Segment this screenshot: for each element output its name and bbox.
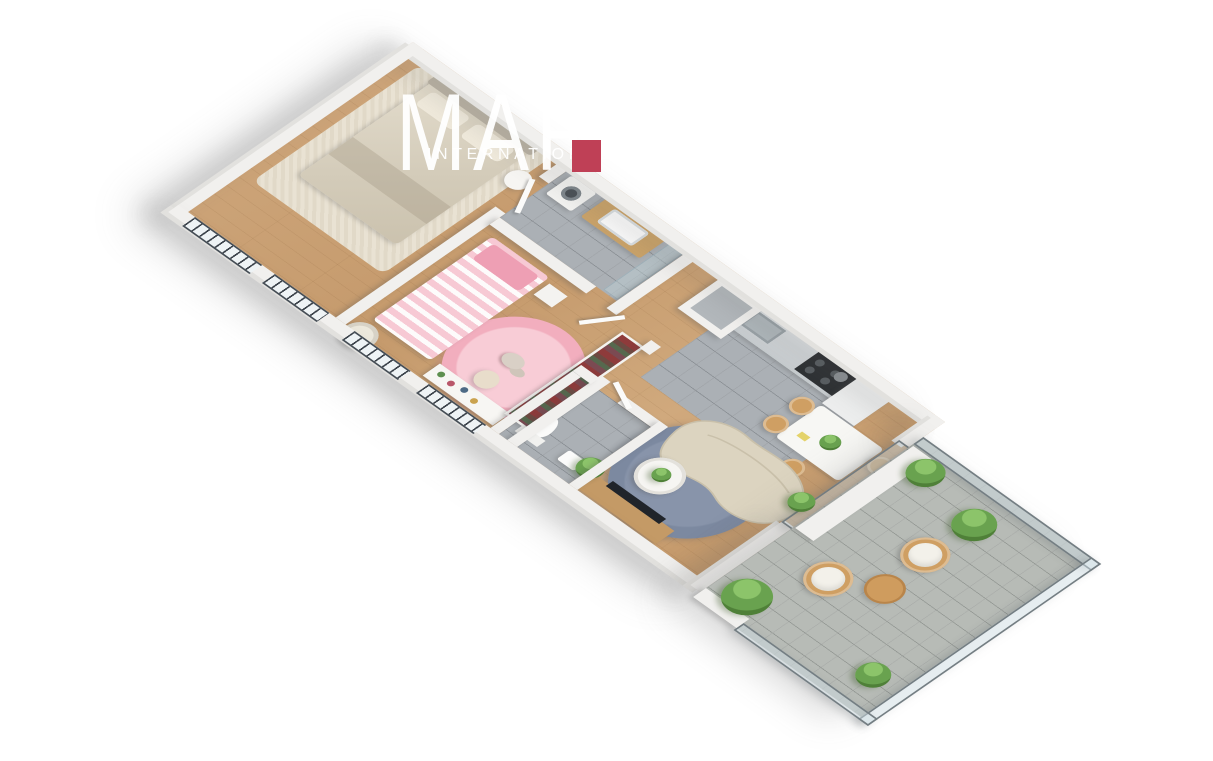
- washer-door-icon: [557, 184, 585, 204]
- nightstand: [534, 284, 568, 308]
- table-setting: [796, 432, 810, 442]
- chair-cushion: [804, 562, 852, 596]
- apartment-3d-floorplan: [161, 42, 1120, 722]
- desk-items: [435, 371, 446, 379]
- coffee-table-plant-icon: [647, 465, 675, 485]
- chair-cushion: [901, 538, 949, 572]
- floorplan-canvas: MARC INTERNATIONAL: [0, 0, 1213, 761]
- table-plant-icon: [815, 432, 846, 454]
